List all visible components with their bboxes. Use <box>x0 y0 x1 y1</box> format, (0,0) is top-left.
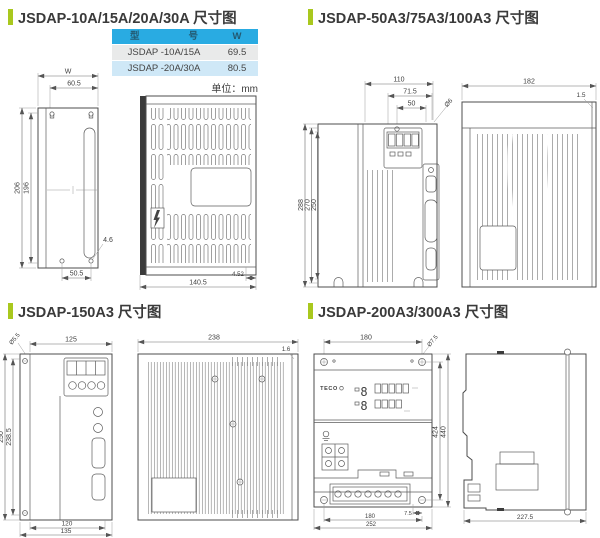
front-view: Ø5.5 125 250 238.5 <box>0 332 112 537</box>
drawing-jsdap-200a3-300a3: 180 Ø7.5 TECO 8 8 <box>300 332 600 538</box>
dim-250: 250 <box>311 199 318 211</box>
vent-strip <box>232 357 282 366</box>
nameplate <box>191 168 251 206</box>
vent-strip <box>230 510 282 518</box>
dim-110: 110 <box>393 77 404 84</box>
side-view: 182 1.5 <box>462 79 596 288</box>
cell-model: JSDAP -10A/15A <box>112 45 216 60</box>
accent-bar <box>308 9 313 25</box>
nameplate <box>152 478 196 512</box>
drawing-jsdap-10a-30a: W 60.5 206 196 50.5 4.6 <box>0 62 300 295</box>
vent-grille <box>150 108 165 263</box>
dim-196: 196 <box>24 182 31 194</box>
section-title-text: JSDAP-50A3/75A3/100A3 尺寸图 <box>318 7 539 28</box>
dim-424: 424 <box>433 426 440 438</box>
dim-4-6: 4.6 <box>103 237 113 244</box>
dim-hole-dia: Ø6 <box>443 97 454 108</box>
dim-4-52: 4.52 <box>232 272 244 278</box>
dim-250: 250 <box>0 431 5 443</box>
header-w: W <box>216 29 258 44</box>
dim-227-5: 227.5 <box>517 514 534 521</box>
section-title-q3: JSDAP-150A3 尺寸图 <box>8 302 161 320</box>
dim-60-5: 60.5 <box>67 81 81 88</box>
dim-182: 182 <box>523 79 535 86</box>
seven-segment-display: 8 <box>360 385 367 399</box>
side-view: 140.5 4.52 <box>140 96 256 290</box>
mounting-screw <box>565 509 571 515</box>
drawing-jsdap-150a3: Ø5.5 125 250 238.5 <box>0 332 300 538</box>
side-view: 227.5 <box>463 349 586 524</box>
section-title-q4: JSDAP-200A3/300A3 尺寸图 <box>308 302 508 320</box>
vent-grille <box>366 170 394 282</box>
dim-125: 125 <box>65 337 77 344</box>
header-model-char2: 号 <box>188 29 198 44</box>
dim-238-5: 238.5 <box>6 428 13 446</box>
section-title-q1: JSDAP-10A/15A/20A/30A 尺寸图 <box>8 8 237 26</box>
back-plate-view: W 60.5 206 196 50.5 4.6 <box>15 69 113 282</box>
dim-120: 120 <box>62 521 73 528</box>
vent-grille <box>167 108 251 165</box>
mounting-screw <box>565 349 571 355</box>
nameplate <box>480 226 516 270</box>
section-title-text: JSDAP-200A3/300A3 尺寸图 <box>318 301 508 322</box>
dim-w: W <box>65 69 72 76</box>
table-row: JSDAP -10A/15A 69.5 <box>112 44 258 60</box>
seven-segment-display: 8 <box>360 399 367 413</box>
vent-grille <box>167 210 251 263</box>
table-header-row: 型 号 W <box>112 29 258 44</box>
dim-180-bottom: 180 <box>365 514 376 520</box>
dim-hole-dia: Ø5.5 <box>9 332 22 346</box>
dim-440: 440 <box>441 426 448 438</box>
section-title-text: JSDAP-150A3 尺寸图 <box>18 301 161 322</box>
dim-7-5: 7.5 <box>404 511 412 517</box>
front-view: 180 Ø7.5 TECO 8 8 <box>314 334 451 530</box>
dim-1-6: 1.6 <box>282 347 291 353</box>
dim-135: 135 <box>61 528 72 535</box>
dim-140-5: 140.5 <box>189 280 207 287</box>
dim-71-5: 71.5 <box>403 89 417 96</box>
brand-logo: TECO <box>320 386 338 392</box>
header-model-char1: 型 <box>130 29 140 44</box>
dim-50: 50 <box>408 101 416 108</box>
accent-bar <box>308 303 313 319</box>
accent-bar <box>8 9 13 25</box>
section-title-text: JSDAP-10A/15A/20A/30A 尺寸图 <box>18 7 237 28</box>
accent-bar <box>8 303 13 319</box>
dim-238: 238 <box>208 335 220 342</box>
front-panel-strip <box>140 96 146 275</box>
section-title-q2: JSDAP-50A3/75A3/100A3 尺寸图 <box>308 8 539 26</box>
dim-hole-dia: Ø7.5 <box>427 334 440 348</box>
dim-252: 252 <box>366 522 377 528</box>
manual-page: JSDAP-10A/15A/20A/30A 尺寸图 型 号 W JSDAP -1… <box>0 0 600 538</box>
front-view: 110 71.5 50 Ø6 <box>298 77 455 288</box>
dim-206: 206 <box>15 182 22 194</box>
dim-180-top: 180 <box>360 335 372 342</box>
header-model: 型 号 <box>112 29 216 44</box>
dim-1-5: 1.5 <box>576 92 585 99</box>
side-view: 238 1.6 <box>138 335 298 521</box>
cell-w: 69.5 <box>216 45 258 60</box>
drawing-jsdap-50a3-100a3: 110 71.5 50 Ø6 <box>300 62 600 295</box>
dim-50-5: 50.5 <box>70 271 84 278</box>
